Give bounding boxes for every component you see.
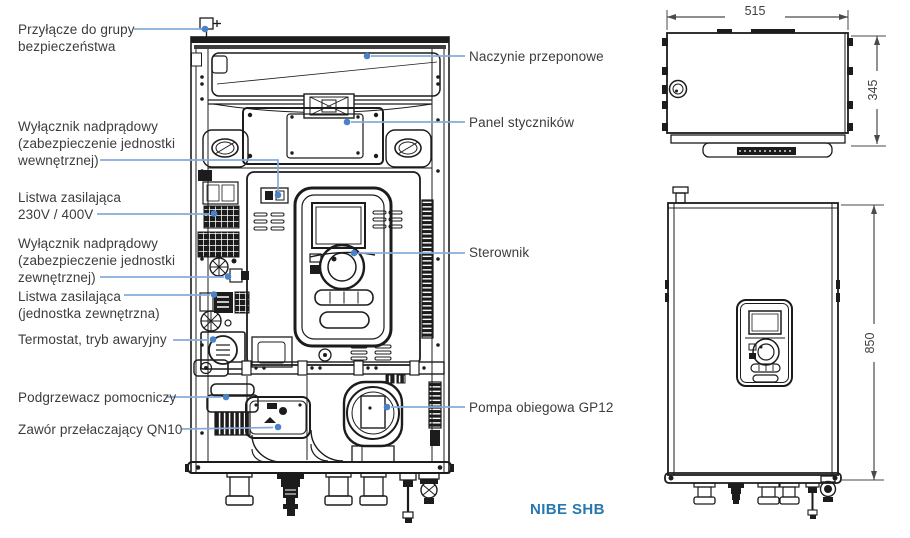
- sensor-rod-part: [400, 473, 416, 523]
- door-knob-part: [670, 81, 687, 98]
- callout-circulation-pump-gp12: Pompa obiegowa GP12: [469, 399, 614, 416]
- dimension-depth: 345: [866, 71, 880, 109]
- callout-line: Pompa obiegowa GP12: [469, 399, 614, 416]
- callout-line: zewnętrznej): [18, 269, 175, 286]
- callout-power-strip-230-400: Listwa zasilająca 230V / 400V: [18, 189, 121, 223]
- callout-line: Przyłącze do grupy: [18, 21, 135, 38]
- callout-power-strip-outdoor: Listwa zasilająca (jednostka zewnętrzna): [18, 288, 160, 322]
- drain-valve-part: [277, 473, 304, 516]
- callout-line: Sterownik: [469, 244, 529, 261]
- callout-switching-valve-qn10: Zawór przełaczający QN10: [18, 421, 182, 438]
- fan-knob-part: [210, 258, 237, 276]
- cable-grommets-part: [203, 130, 431, 167]
- relief-fitting-part: [419, 473, 439, 504]
- callout-line: Panel styczników: [469, 114, 574, 131]
- bottom-pipes-part: [226, 473, 439, 523]
- technical-diagram-page: Przyłącze do grupy bezpieczeństwa Wyłącz…: [0, 0, 910, 538]
- callout-line: Podgrzewacz pomocniczy: [18, 389, 176, 406]
- callout-contactor-panel: Panel styczników: [469, 114, 574, 131]
- front-control-panel-part: [737, 300, 792, 386]
- callout-breaker-indoor: Wyłącznik nadprądowy (zabezpieczenie jed…: [18, 118, 175, 169]
- top-view-drawing: [662, 29, 853, 157]
- dimension-width: 515: [725, 4, 785, 18]
- callout-controller: Sterownik: [469, 244, 529, 261]
- callout-expansion-vessel: Naczynie przeponowe: [469, 48, 604, 65]
- callout-line: Termostat, tryb awaryjny: [18, 331, 167, 348]
- hydraulic-compartment-part: [207, 375, 441, 462]
- internal-view-drawing: [185, 18, 454, 523]
- door-panel-part: [247, 172, 433, 367]
- callout-thermostat-emergency: Termostat, tryb awaryjny: [18, 331, 167, 348]
- front-bottom-pipes-part: [694, 476, 836, 519]
- product-model-label: NIBE SHB: [530, 501, 605, 518]
- switching-valve-qn10-part: [246, 397, 310, 438]
- callout-line: (jednostka zewnętrzna): [18, 305, 160, 322]
- callout-line: bezpieczeństwa: [18, 38, 135, 55]
- controller-display-part: [295, 188, 391, 346]
- terminal-block-230-400-part: [204, 206, 239, 228]
- callout-line: (zabezpieczenie jednostki: [18, 252, 175, 269]
- dimension-lines: [667, 10, 886, 480]
- callout-line: 230V / 400V: [18, 206, 121, 223]
- callout-line: wewnętrznej): [18, 152, 175, 169]
- bottom-rail-part: [185, 462, 454, 473]
- callout-safety-group-connection: Przyłącze do grupy bezpieczeństwa: [18, 21, 135, 55]
- dimension-height: 850: [863, 324, 877, 362]
- vent-stack-part: [673, 187, 688, 203]
- circulation-pump-gp12-part: [344, 375, 405, 462]
- expansion-vessel-part: [212, 53, 440, 96]
- callout-line: Naczynie przeponowe: [469, 48, 604, 65]
- callout-line: Wyłącznik nadprądowy: [18, 118, 175, 135]
- mid-rail-part: [194, 360, 444, 376]
- callout-breaker-outdoor: Wyłącznik nadprądowy (zabezpieczenie jed…: [18, 235, 175, 286]
- callout-line: Wyłącznik nadprądowy: [18, 235, 175, 252]
- callout-line: Zawór przełaczający QN10: [18, 421, 182, 438]
- front-view-drawing: [665, 187, 841, 519]
- callout-line: Listwa zasilająca: [18, 288, 160, 305]
- callout-line: Listwa zasilająca: [18, 189, 121, 206]
- callout-line: (zabezpieczenie jednostki: [18, 135, 175, 152]
- fan-knob-2-part: [201, 311, 231, 331]
- callout-auxiliary-heater: Podgrzewacz pomocniczy: [18, 389, 176, 406]
